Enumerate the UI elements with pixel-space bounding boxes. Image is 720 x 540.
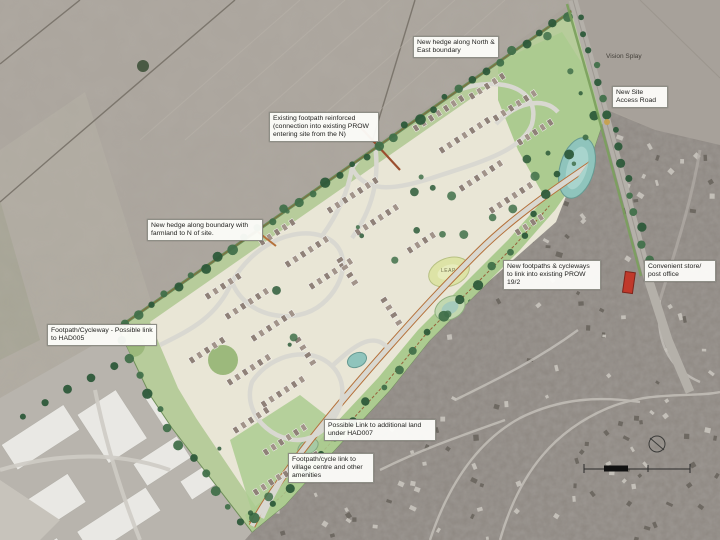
label-existing-footpath: Existing footpath reinforced (connection…: [269, 112, 379, 142]
label-convenient-store: Convenient store/ post office: [644, 260, 716, 282]
label-vision-splay: Vision Splay: [606, 53, 668, 60]
label-hedge-north-east: New hedge along North & East boundary: [413, 36, 499, 58]
label-link-had007: Possible Link to additional land under H…: [324, 419, 436, 441]
label-footpath-village: Footpath/cycle link to village centre an…: [288, 453, 374, 483]
field-tree: [137, 60, 149, 72]
label-new-site-access-road: New Site Access Road: [612, 86, 668, 108]
masterplan-canvas: New hedge along North & East boundary Vi…: [0, 0, 720, 540]
label-leap: LEAP: [441, 268, 456, 274]
label-footpath-had005: Footpath/Cycleway - Possible link to HAD…: [47, 324, 157, 346]
label-hedge-farmland: New hedge along boundary with farmland t…: [147, 219, 263, 241]
label-footpaths-cycleways: New footpaths & cycleways to link into e…: [503, 260, 601, 290]
